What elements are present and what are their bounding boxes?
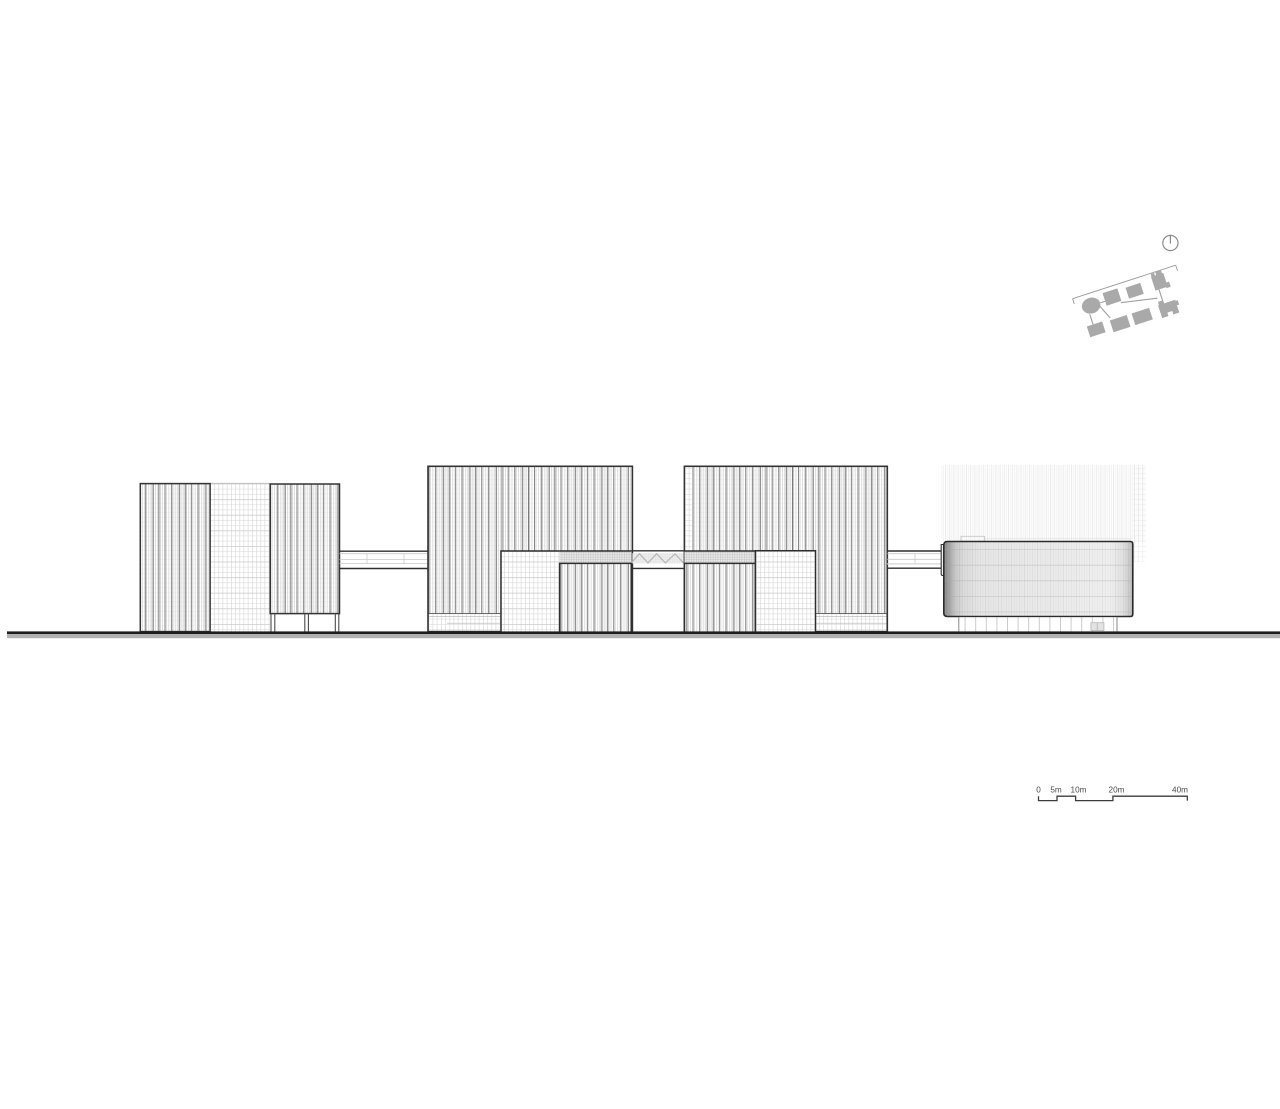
svg-text:0: 0 [1036,785,1041,794]
svg-text:20m: 20m [1109,785,1125,794]
svg-text:10m: 10m [1071,785,1087,794]
svg-text:40m: 40m [1172,785,1188,794]
svg-text:5m: 5m [1050,785,1062,794]
